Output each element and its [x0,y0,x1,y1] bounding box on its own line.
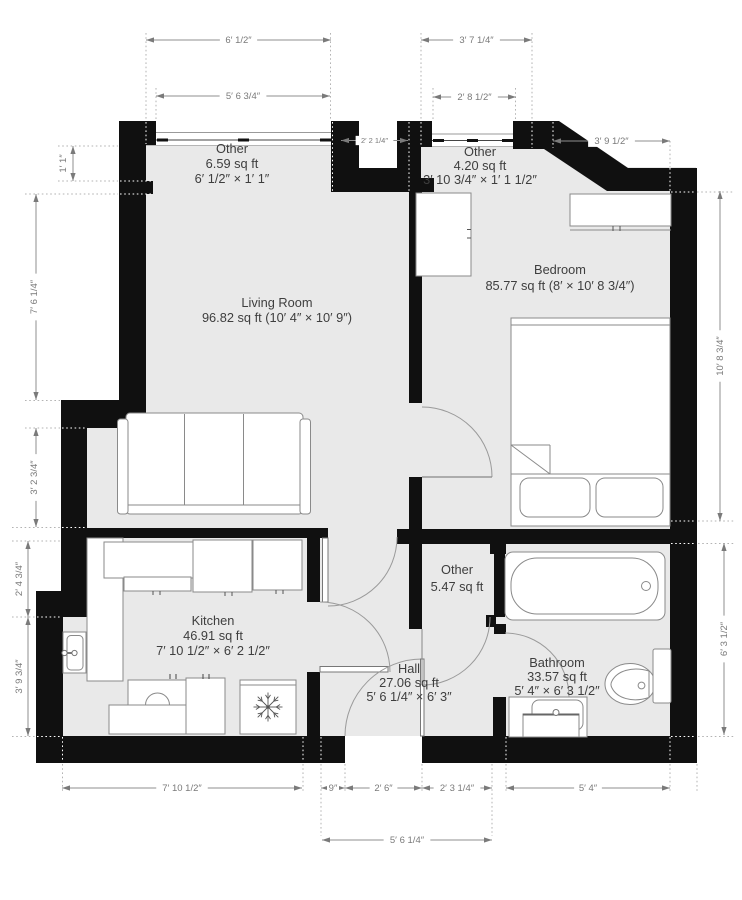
svg-text:6′ 1/2″: 6′ 1/2″ [225,35,252,46]
svg-text:7′ 10 1/2″: 7′ 10 1/2″ [162,783,202,794]
svg-text:3′ 7 1/4″: 3′ 7 1/4″ [459,35,494,46]
svg-text:5′ 4″ × 6′ 3 1/2″: 5′ 4″ × 6′ 3 1/2″ [514,683,600,698]
svg-text:2′ 3 1/4″: 2′ 3 1/4″ [440,783,475,794]
svg-text:2′ 2 1/4″: 2′ 2 1/4″ [361,136,388,145]
svg-text:96.82 sq ft (10′ 4″ × 10′ 9″): 96.82 sq ft (10′ 4″ × 10′ 9″) [202,310,352,325]
svg-text:85.77 sq ft (8′ × 10′ 8 3/4″): 85.77 sq ft (8′ × 10′ 8 3/4″) [485,278,634,293]
svg-text:5.47 sq ft: 5.47 sq ft [431,579,484,594]
svg-text:3′ 10 3/4″ × 1′ 1 1/2″: 3′ 10 3/4″ × 1′ 1 1/2″ [423,172,537,187]
svg-text:Other: Other [441,562,474,577]
svg-text:5′ 6 1/4″: 5′ 6 1/4″ [390,835,425,846]
svg-text:Bedroom: Bedroom [534,262,586,277]
svg-text:Kitchen: Kitchen [192,613,235,628]
svg-text:27.06 sq ft: 27.06 sq ft [379,675,439,690]
svg-text:9″: 9″ [329,783,338,794]
svg-text:7′ 6 1/4″: 7′ 6 1/4″ [29,279,40,314]
svg-text:6.59 sq ft: 6.59 sq ft [206,156,259,171]
svg-text:Other: Other [464,144,497,159]
svg-text:3′ 2 3/4″: 3′ 2 3/4″ [29,460,40,495]
svg-text:Bathroom: Bathroom [529,655,584,670]
svg-text:3′ 9 3/4″: 3′ 9 3/4″ [14,659,25,694]
svg-text:10′ 8 3/4″: 10′ 8 3/4″ [715,336,726,376]
svg-text:33.57 sq ft: 33.57 sq ft [527,669,587,684]
svg-text:2′ 6″: 2′ 6″ [374,783,393,794]
svg-text:3′ 9 1/2″: 3′ 9 1/2″ [594,136,629,147]
svg-text:2′ 4 3/4″: 2′ 4 3/4″ [14,561,25,596]
svg-text:Living Room: Living Room [241,295,312,310]
svg-text:6′ 3 1/2″: 6′ 3 1/2″ [719,621,730,656]
svg-text:4.20 sq ft: 4.20 sq ft [454,158,507,173]
svg-text:2′ 8 1/2″: 2′ 8 1/2″ [457,92,492,103]
svg-text:46.91 sq ft: 46.91 sq ft [183,628,243,643]
svg-text:Hall: Hall [398,661,420,676]
svg-text:Other: Other [216,141,249,156]
svg-text:1′ 1″: 1′ 1″ [58,154,69,173]
svg-text:6′ 1/2″ × 1′ 1″: 6′ 1/2″ × 1′ 1″ [195,171,270,186]
svg-text:5′ 4″: 5′ 4″ [579,783,598,794]
svg-text:7′ 10 1/2″ × 6′ 2 1/2″: 7′ 10 1/2″ × 6′ 2 1/2″ [156,643,270,658]
svg-text:5′ 6 1/4″ × 6′ 3″: 5′ 6 1/4″ × 6′ 3″ [366,689,452,704]
svg-text:5′ 6 3/4″: 5′ 6 3/4″ [226,91,261,102]
